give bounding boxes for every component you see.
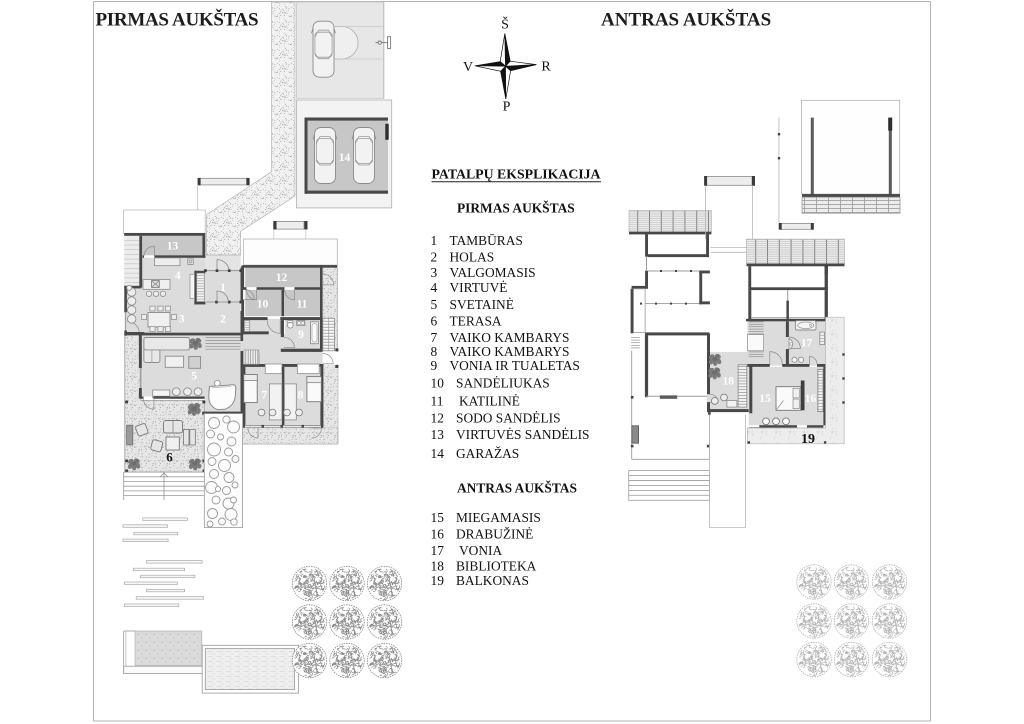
svg-text:11: 11 xyxy=(297,299,308,311)
svg-text:13: 13 xyxy=(431,427,445,442)
svg-text:1: 1 xyxy=(431,233,438,248)
svg-text:V: V xyxy=(463,60,473,75)
svg-text:ANTRAS AUKŠTAS: ANTRAS AUKŠTAS xyxy=(457,481,577,496)
svg-text:11: 11 xyxy=(431,394,444,409)
svg-text:VAIKO KAMBARYS: VAIKO KAMBARYS xyxy=(450,330,570,345)
svg-text:BALKONAS: BALKONAS xyxy=(456,573,529,588)
svg-text:18: 18 xyxy=(722,376,734,388)
svg-text:VONIA: VONIA xyxy=(459,543,502,558)
svg-text:DRABUŽINĖ: DRABUŽINĖ xyxy=(456,527,533,542)
svg-text:4: 4 xyxy=(175,270,181,282)
svg-text:13: 13 xyxy=(167,241,179,253)
svg-text:3: 3 xyxy=(179,314,185,326)
svg-text:5: 5 xyxy=(431,297,438,312)
svg-text:HOLAS: HOLAS xyxy=(450,250,495,265)
svg-text:15: 15 xyxy=(431,510,445,525)
svg-text:Š: Š xyxy=(501,16,509,33)
svg-text:PATALPŲ EKSPLIKACIJA: PATALPŲ EKSPLIKACIJA xyxy=(432,167,601,182)
svg-text:12: 12 xyxy=(276,272,288,284)
svg-text:17: 17 xyxy=(801,338,813,350)
svg-text:VALGOMASIS: VALGOMASIS xyxy=(450,265,536,280)
svg-text:9: 9 xyxy=(298,329,304,341)
svg-text:VIRTUVĖ: VIRTUVĖ xyxy=(450,280,508,295)
svg-text:14: 14 xyxy=(339,152,351,164)
svg-text:MIEGAMASIS: MIEGAMASIS xyxy=(456,510,541,525)
svg-text:VAIKO KAMBARYS: VAIKO KAMBARYS xyxy=(450,344,570,359)
svg-text:9: 9 xyxy=(431,358,438,373)
svg-text:TERASA: TERASA xyxy=(450,314,502,329)
svg-text:GARAŽAS: GARAŽAS xyxy=(456,446,519,461)
svg-text:VONIA IR TUALETAS: VONIA IR TUALETAS xyxy=(450,358,580,373)
svg-text:14: 14 xyxy=(431,446,445,461)
svg-text:6: 6 xyxy=(431,314,438,329)
svg-text:8: 8 xyxy=(298,390,304,402)
svg-text:15: 15 xyxy=(759,393,771,405)
svg-text:R: R xyxy=(541,60,551,75)
svg-text:4: 4 xyxy=(431,280,438,295)
svg-text:TAMBŪRAS: TAMBŪRAS xyxy=(450,233,523,248)
svg-text:BIBLIOTEKA: BIBLIOTEKA xyxy=(456,559,537,574)
svg-text:SODO SANDĖLIS: SODO SANDĖLIS xyxy=(456,411,561,426)
svg-text:18: 18 xyxy=(431,559,445,574)
svg-text:VIRTUVĖS SANDĖLIS: VIRTUVĖS SANDĖLIS xyxy=(456,427,589,442)
svg-text:SVETAINĖ: SVETAINĖ xyxy=(450,297,514,312)
svg-text:16: 16 xyxy=(431,527,445,542)
svg-text:SANDĖLIUKAS: SANDĖLIUKAS xyxy=(456,376,550,391)
svg-text:1: 1 xyxy=(220,282,226,294)
svg-text:PIRMAS AUKŠTAS: PIRMAS AUKŠTAS xyxy=(96,9,259,31)
svg-text:10: 10 xyxy=(431,376,445,391)
svg-text:5: 5 xyxy=(191,371,197,383)
svg-text:7: 7 xyxy=(261,390,267,402)
svg-text:2: 2 xyxy=(431,250,438,265)
svg-text:KATILINĖ: KATILINĖ xyxy=(459,394,520,409)
svg-text:7: 7 xyxy=(431,330,438,345)
svg-text:6: 6 xyxy=(166,450,173,465)
svg-text:16: 16 xyxy=(805,393,817,405)
svg-text:2: 2 xyxy=(220,314,226,326)
svg-text:ANTRAS AUKŠTAS: ANTRAS AUKŠTAS xyxy=(601,9,771,31)
svg-text:P: P xyxy=(503,100,511,115)
svg-text:PIRMAS AUKŠTAS: PIRMAS AUKŠTAS xyxy=(457,201,575,216)
svg-text:19: 19 xyxy=(431,573,445,588)
svg-text:10: 10 xyxy=(257,299,269,311)
svg-text:3: 3 xyxy=(431,265,438,280)
svg-text:19: 19 xyxy=(801,432,815,447)
svg-text:17: 17 xyxy=(431,543,445,558)
svg-text:12: 12 xyxy=(431,411,444,426)
svg-text:8: 8 xyxy=(431,344,438,359)
